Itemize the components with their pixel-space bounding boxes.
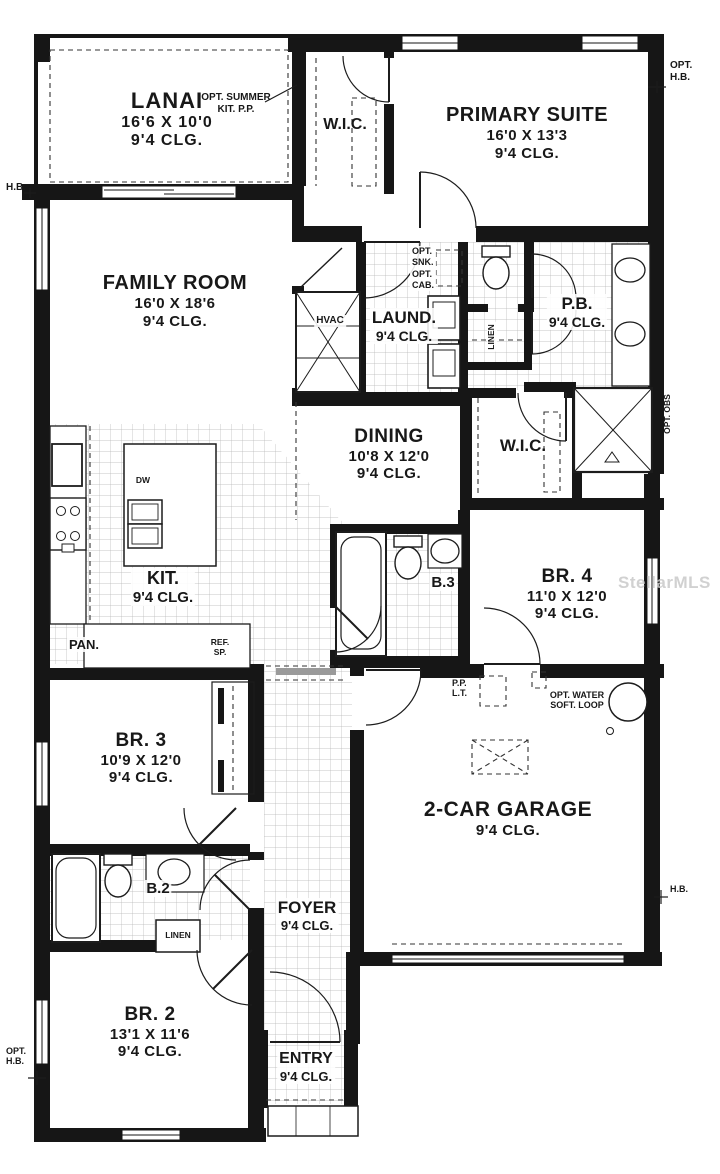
shower-icon — [574, 388, 652, 472]
family-room-label: FAMILY ROOM 16'0 X 18'6 9'4 CLG. — [103, 272, 247, 330]
lanai-label: LANAI 16'6 X 10'0 9'4 CLG. — [121, 88, 213, 151]
dishwasher-label: DW — [134, 476, 152, 486]
entry-label: ENTRY 9'4 CLG. — [277, 1050, 335, 1084]
stellarmls-watermark: StellarMLS — [618, 573, 711, 593]
primary-suite-label: PRIMARY SUITE 16'0 X 13'3 9'4 CLG. — [446, 104, 608, 162]
opt-water-soft-label: OPT. WATER SOFT. LOOP — [550, 690, 604, 711]
double-sink-icon — [612, 244, 650, 386]
kitchen-label: KIT. 9'4 CLG. — [131, 568, 195, 606]
powder-bath-label: P.B. 9'4 CLG. — [547, 294, 607, 330]
bathtub-icon — [336, 532, 386, 656]
opt-obs-label: OPT. OBS — [663, 394, 673, 434]
sink-icon — [428, 534, 462, 568]
bath3-label: B.3 — [429, 574, 456, 591]
bathtub-icon — [52, 854, 100, 942]
opt-summer-kit-label: OPT. SUMMER KIT. P.P. — [201, 92, 270, 115]
laundry-label: LAUND. 9'4 CLG. — [370, 308, 438, 344]
toilet-icon — [394, 536, 422, 579]
entry-stoop — [268, 1106, 358, 1136]
range-icon — [50, 498, 86, 552]
water-heater-icon — [607, 683, 648, 735]
hb-right-label: H.B. — [670, 884, 688, 894]
pantry-label: PAN. — [67, 637, 101, 652]
pp-lt-label: P.P. L.T. — [452, 678, 467, 699]
opt-hb-bottom-label: OPT. H.B. — [6, 1046, 26, 1067]
bedroom4-label: BR. 4 11'0 X 12'0 9'4 CLG. — [527, 566, 607, 623]
dining-label: DINING 10'8 X 12'0 9'4 CLG. — [348, 426, 429, 483]
floor-plan-drawing — [0, 0, 720, 1174]
toilet-icon — [482, 246, 510, 289]
bath2-label: B.2 — [144, 880, 171, 897]
linen-b2-label: LINEN — [163, 931, 193, 941]
linen-hall-label: LINEN — [487, 322, 497, 352]
bedroom3-label: BR. 3 10'9 X 12'0 9'4 CLG. — [100, 730, 181, 787]
opt-hb-top-label: OPT. H.B. — [670, 60, 692, 83]
refrigerator-space-label: REF. SP. — [209, 638, 231, 658]
wic-top-label: W.I.C. — [323, 116, 367, 135]
threshold-strip — [276, 668, 336, 675]
garage-label: 2-CAR GARAGE 9'4 CLG. — [424, 798, 592, 840]
foyer-label: FOYER 9'4 CLG. — [276, 898, 339, 933]
kitchen-island — [124, 444, 216, 566]
wic-middle-label: W.I.C. — [500, 436, 546, 456]
floor-plan-page: LANAI 16'6 X 10'0 9'4 CLG. OPT. SUMMER K… — [0, 0, 720, 1174]
bedroom2-label: BR. 2 13'1 X 11'6 9'4 CLG. — [110, 1004, 190, 1061]
hvac-label: HVAC — [314, 315, 346, 327]
opt-snk-label: OPT. SNK. OPT. CAB. — [410, 246, 436, 291]
hb-left-label: H.B. — [6, 182, 26, 194]
toilet-icon — [104, 854, 132, 897]
